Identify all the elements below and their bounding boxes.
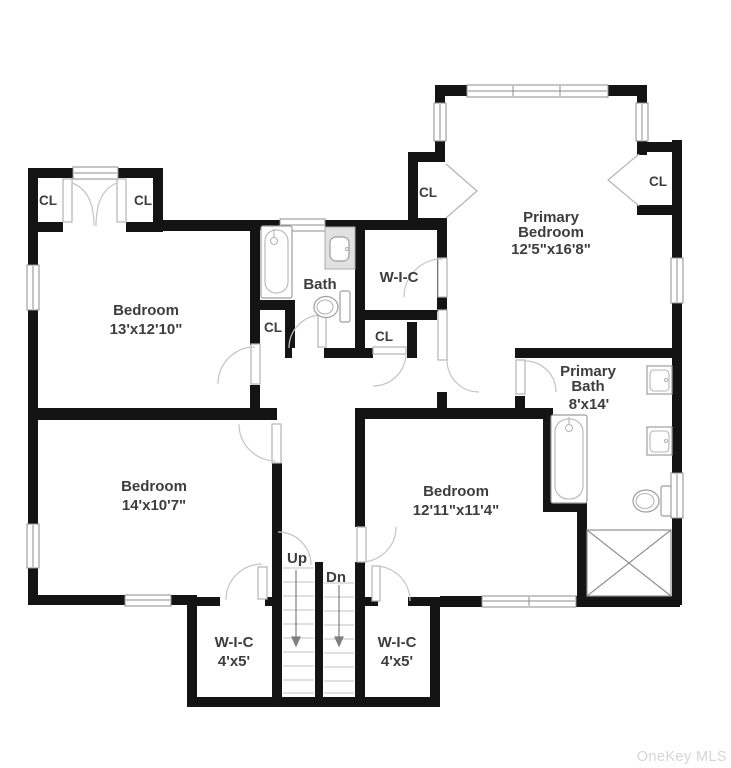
window [73, 167, 118, 179]
window [27, 265, 39, 310]
bifold-door [608, 154, 639, 206]
sink-icon [647, 366, 672, 394]
bay-window [467, 85, 608, 97]
bathtub-icon [551, 415, 587, 503]
room-label-wic-center: W-I-C [380, 269, 419, 286]
watermark: OneKey MLS [637, 749, 727, 765]
window [671, 473, 683, 518]
room-dims-bedroom-top-left: 13'x12'10" [110, 321, 183, 338]
door [218, 344, 260, 384]
closet-label: CL [264, 320, 282, 335]
room-label-bedroom-bottom-middle: Bedroom [423, 483, 489, 500]
closet-label: CL [39, 193, 57, 208]
sink-icon [647, 427, 672, 455]
room-label-primary-bedroom-2: Bedroom [518, 224, 584, 241]
room-dims-wic-bottom-right: 4'x5' [381, 653, 413, 670]
door [438, 310, 479, 392]
stairs-up-label: Up [287, 550, 307, 567]
closet-label: CL [419, 185, 437, 200]
window [636, 103, 648, 141]
window [482, 596, 576, 607]
room-label-primary-bath-2: Bath [571, 378, 604, 395]
sink-icon [325, 227, 355, 269]
door [373, 347, 406, 386]
door [226, 564, 267, 600]
bathtub-icon [261, 226, 292, 298]
closet-label: CL [649, 174, 667, 189]
room-dims-primary-bedroom: 12'5"x16'8" [511, 241, 591, 258]
door [516, 360, 556, 394]
stairs-down-label: Dn [326, 569, 346, 586]
room-label-bedroom-top-left: Bedroom [113, 302, 179, 319]
shower-xbox-icon [587, 530, 671, 596]
room-dims-wic-bottom-left: 4'x5' [218, 653, 250, 670]
room-label-bath: Bath [303, 276, 336, 293]
window [434, 103, 446, 141]
window [671, 258, 683, 303]
closet-label: CL [375, 329, 393, 344]
door [372, 566, 410, 601]
floor-plan-page: Bedroom 13'x12'10" Bedroom 14'x10'7" Bed… [0, 0, 731, 768]
room-dims-bedroom-bottom-middle: 12'11"x11'4" [413, 502, 499, 519]
bifold-door [446, 164, 477, 218]
door [239, 424, 281, 463]
room-label-wic-bottom-left: W-I-C [215, 634, 254, 651]
toilet-icon [633, 486, 671, 516]
window [27, 524, 39, 568]
closet-label: CL [134, 193, 152, 208]
door [357, 527, 396, 562]
room-dims-primary-bath: 8'x14' [569, 396, 610, 413]
room-label-wic-bottom-right: W-I-C [378, 634, 417, 651]
window [125, 595, 171, 606]
room-dims-bedroom-bottom-left: 14'x10'7" [122, 497, 186, 514]
closet-double-door [63, 179, 126, 226]
room-label-bedroom-bottom-left: Bedroom [121, 478, 187, 495]
floor-plan-drawing: Bedroom 13'x12'10" Bedroom 14'x10'7" Bed… [0, 0, 731, 768]
